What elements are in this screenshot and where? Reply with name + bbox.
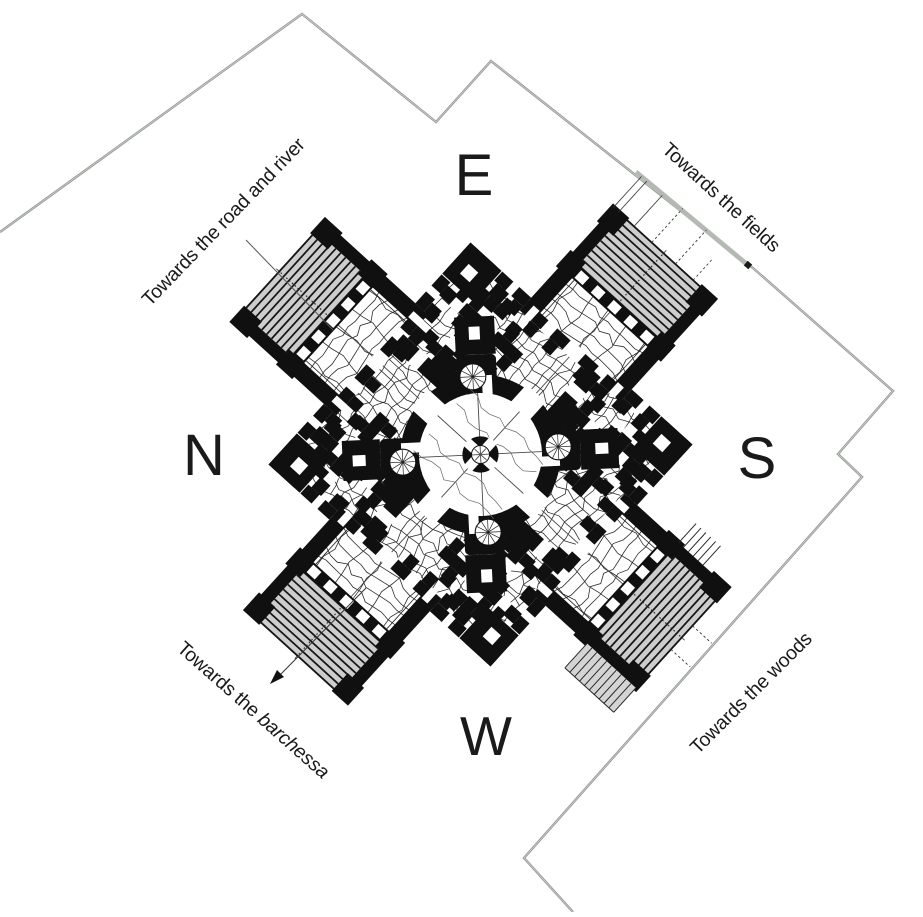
- svg-text:S: S: [738, 426, 777, 491]
- svg-text:N: N: [183, 423, 225, 488]
- svg-text:E: E: [455, 143, 494, 208]
- svg-text:W: W: [460, 705, 512, 767]
